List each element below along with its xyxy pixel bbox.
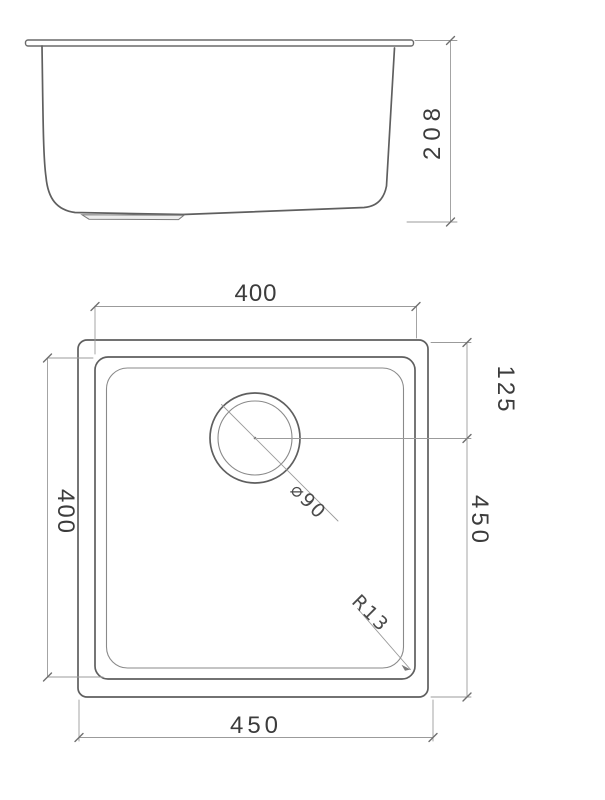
dim-bowl-depth: 400 xyxy=(44,354,104,681)
side-height-label: 208 xyxy=(419,102,446,160)
bowl-width-label: 400 xyxy=(234,280,277,307)
plan-bowl-rim xyxy=(95,357,415,679)
dim-side-height: 208 xyxy=(407,37,457,227)
drain-offset-label: 125 xyxy=(492,365,519,414)
dim-outer-width: 450 xyxy=(75,700,437,742)
plan-view: ⌀90 R13 400 400 xyxy=(44,280,520,742)
side-view-body xyxy=(42,46,395,215)
side-view-rim xyxy=(26,40,414,46)
technical-drawing: 208 ⌀90 R13 400 xyxy=(0,0,605,800)
dim-outer-depth: 450 xyxy=(431,439,493,702)
dim-bowl-width: 400 xyxy=(91,280,420,354)
dim-drain-offset: 125 xyxy=(257,339,519,443)
drain-diameter-label: ⌀90 xyxy=(286,479,331,524)
side-view-drain-pad xyxy=(82,215,184,220)
side-view: 208 xyxy=(26,37,458,227)
drawing-canvas: 208 ⌀90 R13 400 xyxy=(0,0,605,800)
outer-depth-label: 450 xyxy=(466,495,493,547)
bowl-depth-label: 400 xyxy=(52,489,79,535)
plan-bowl-bottom-edge xyxy=(107,368,404,668)
dim-corner-radius: R13 xyxy=(347,591,410,671)
outer-width-label: 450 xyxy=(230,712,282,739)
corner-radius-label: R13 xyxy=(347,591,393,637)
